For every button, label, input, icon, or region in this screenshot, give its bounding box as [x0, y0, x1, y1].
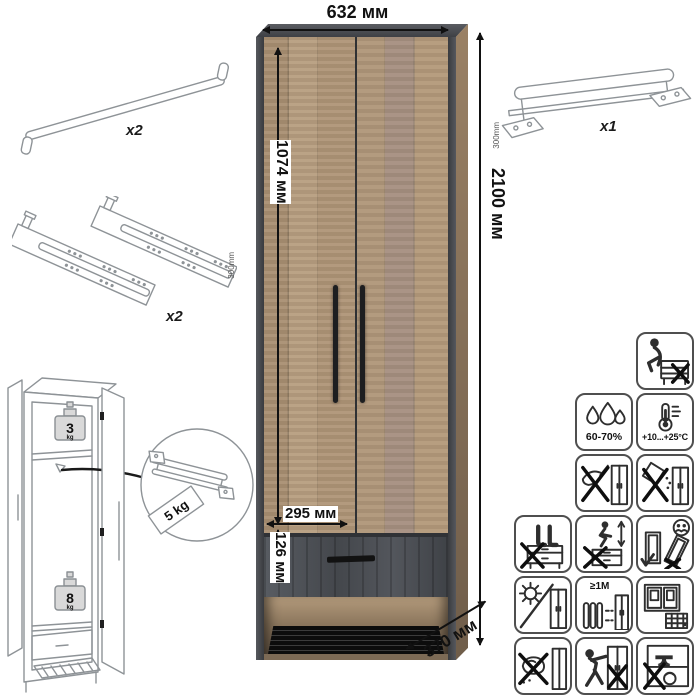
care-icon-grid: 60-70% +10...+25°C — [514, 332, 694, 695]
part-drawer-slides-drawing — [12, 196, 237, 336]
niche-base — [264, 654, 448, 660]
care-icon-no-standing — [514, 515, 572, 573]
interior-load-drawing: 3 kg 8 kg — [0, 350, 262, 700]
no-spilling-icon — [640, 458, 690, 508]
dim-height-label: 2100 мм — [486, 168, 509, 240]
drawer-handle — [327, 555, 375, 563]
no-heavy-objects-icon — [640, 641, 690, 691]
dim-line-door-height — [277, 48, 279, 524]
right-door — [357, 37, 448, 533]
door-handle-qty: x2 — [126, 122, 143, 139]
door-gap — [355, 37, 357, 533]
no-direct-sunlight-icon — [518, 580, 568, 630]
pullout-rail-icon — [494, 56, 700, 164]
open-niche — [264, 597, 448, 660]
care-icon-no-spilling — [636, 454, 694, 512]
top-shelf-load-value: 3 — [66, 420, 74, 436]
no-jumping-icon — [579, 519, 629, 569]
care-icon-no-sharp-objects — [575, 454, 633, 512]
right-edge-trim — [448, 37, 456, 660]
care-icon-no-sunlight — [514, 576, 572, 634]
dim-line-height — [479, 33, 481, 645]
pullout-rail-length: 300mm — [492, 122, 501, 149]
left-door-handle — [333, 285, 338, 403]
humidity-label: 60-70% — [586, 432, 622, 443]
wardrobe-spec-diagram: 632 мм 2100 мм 1074 мм 295 мм 126 мм 370… — [0, 0, 700, 700]
dim-line-width — [263, 29, 448, 31]
drawer-slides-icon — [12, 196, 237, 336]
dim-line-door-width — [267, 523, 347, 525]
top-shelf-load-unit: kg — [66, 435, 73, 441]
humidity-icon — [579, 401, 629, 431]
care-icon-temperature: +10...+25°C — [636, 393, 694, 451]
heater-distance-label: ≥1M — [590, 581, 609, 592]
care-icon-no-sitting — [636, 332, 694, 390]
care-icon-no-wet-cleaning — [514, 637, 572, 695]
no-sharp-objects-icon — [579, 458, 629, 508]
bottom-shelf-load-value: 8 — [66, 590, 74, 606]
care-icon-heater-distance: ≥1M — [575, 576, 633, 634]
care-icon-no-heavy-objects — [636, 637, 694, 695]
drawer-front — [264, 537, 448, 597]
no-sitting-icon — [640, 336, 690, 386]
care-icon-assemble-upright — [636, 515, 694, 573]
door-handle-icon — [8, 48, 243, 160]
pullout-rail-qty: x1 — [600, 118, 617, 135]
dim-door-height-label: 1074 мм — [270, 140, 291, 204]
dim-drawer-height-label: 126 мм — [270, 532, 290, 583]
part-pullout-rail-drawing — [494, 56, 700, 164]
care-icon-ventilate — [636, 576, 694, 634]
wardrobe-side-panel — [456, 24, 468, 660]
right-door-handle — [360, 285, 365, 403]
care-icon-no-pushing — [575, 637, 633, 695]
ventilate-room-icon — [640, 580, 690, 630]
temperature-label: +10...+25°C — [642, 433, 688, 442]
drawer-slides-length: 300mm — [227, 252, 236, 279]
dim-door-width-label: 295 мм — [283, 506, 338, 522]
drawer-slides-qty: x2 — [166, 308, 183, 325]
no-standing-icon — [518, 519, 568, 569]
assemble-upright-icon — [640, 519, 690, 569]
care-icon-humidity: 60-70% — [575, 393, 633, 451]
thermometer-icon — [640, 402, 690, 432]
open-wardrobe-line-drawing: 3 kg 8 kg — [0, 350, 262, 700]
dim-width-label: 632 мм — [263, 3, 452, 22]
part-door-handle-drawing — [8, 48, 243, 160]
no-pushing-icon — [579, 641, 629, 691]
care-icon-no-jumping — [575, 515, 633, 573]
bottom-shelf-load-unit: kg — [66, 605, 73, 611]
no-wet-cleaning-icon — [518, 641, 568, 691]
